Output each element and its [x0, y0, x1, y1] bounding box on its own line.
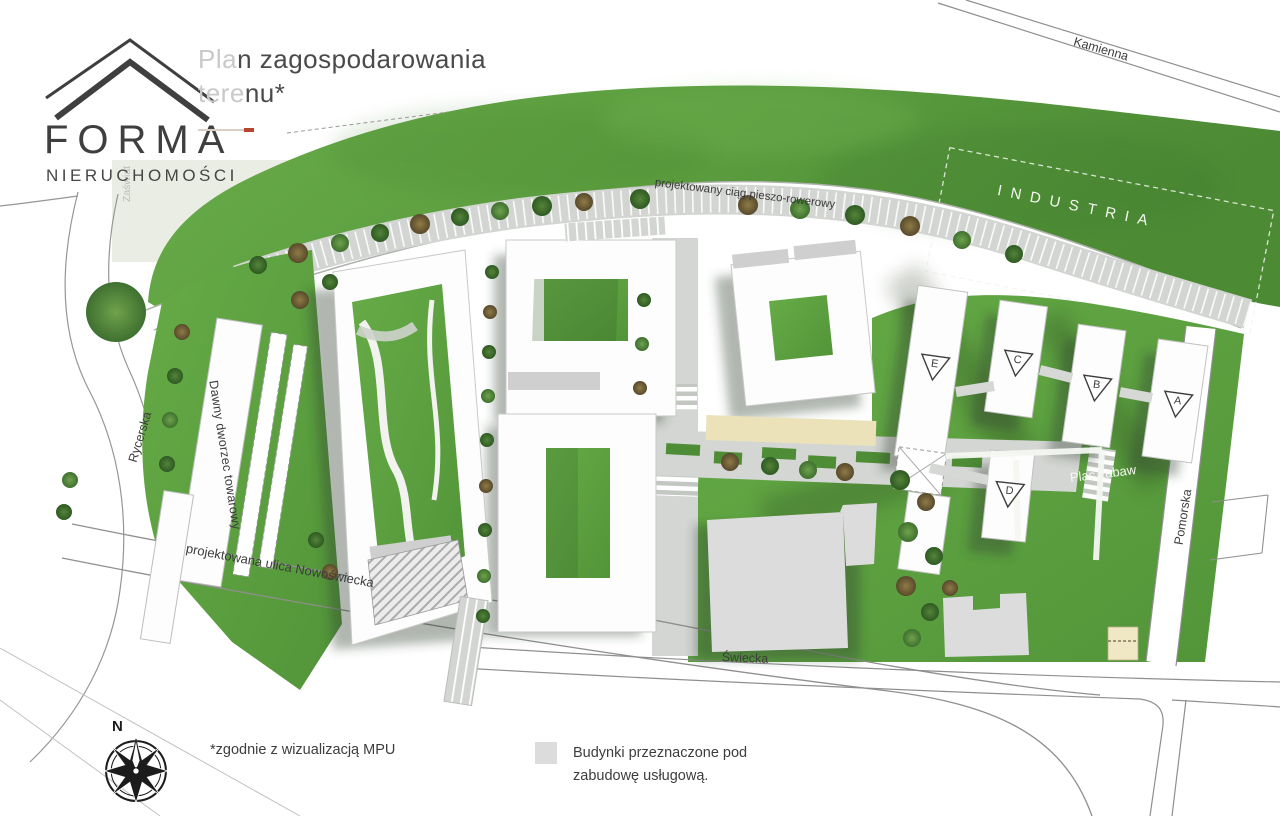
compass-rose-icon [103, 738, 169, 804]
svg-text:C: C [1013, 354, 1023, 367]
legend: Budynki przeznaczone pod zabudowę usługo… [535, 742, 747, 788]
legend-line1: Budynki przeznaczone pod [573, 742, 747, 765]
block-east-square [730, 239, 875, 406]
logo-subtitle: NIERUCHOMOŚCI [46, 166, 238, 186]
street-label-swiecka: Świecka [705, 650, 785, 667]
swiecka-road [455, 646, 1280, 816]
compass-north-label: N [112, 718, 123, 735]
page-title: Plan zagospodarowania terenu* [198, 42, 486, 110]
logo-accent-tick [244, 128, 254, 132]
block-mid-upper [506, 217, 676, 416]
tan-plot [1108, 627, 1138, 660]
building-marker-a: A [1159, 389, 1195, 422]
block-mid-lower [498, 414, 656, 632]
building-marker-c: C [999, 348, 1035, 381]
logo-name: FORMA [44, 118, 233, 163]
legend-swatch-service [535, 742, 557, 764]
svg-text:D: D [1005, 485, 1014, 498]
building-marker-d: D [992, 479, 1027, 511]
rycerska-road [0, 192, 159, 762]
legend-line2: zabudowę usługową. [573, 765, 747, 788]
footnote: *zgodnie z wizualizacją MPU [210, 742, 395, 758]
logo-divider [198, 129, 246, 131]
roundabout-green [86, 282, 146, 342]
building-marker-b: B [1078, 373, 1114, 406]
building-marker-e: E [916, 352, 952, 385]
